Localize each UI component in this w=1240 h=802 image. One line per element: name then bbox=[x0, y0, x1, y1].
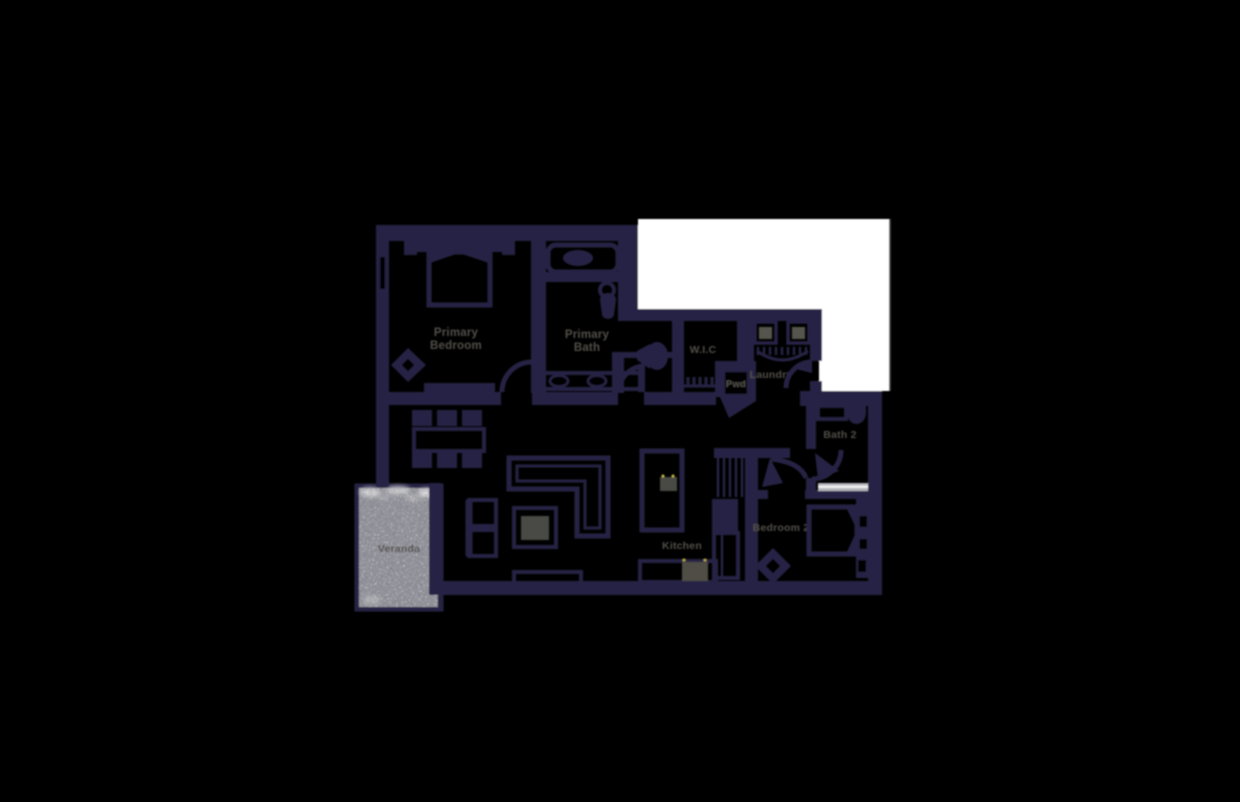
svg-text:Bedroom: Bedroom bbox=[430, 340, 482, 352]
svg-text:Bath 2: Bath 2 bbox=[823, 429, 856, 441]
svg-text:Kitchen: Kitchen bbox=[662, 540, 702, 552]
svg-text:Pwd: Pwd bbox=[726, 379, 746, 390]
svg-text:W.I.C: W.I.C bbox=[690, 344, 717, 356]
svg-text:Primary: Primary bbox=[434, 327, 479, 339]
svg-text:Bedroom 2: Bedroom 2 bbox=[753, 522, 810, 534]
svg-text:Primary: Primary bbox=[565, 329, 610, 341]
svg-text:Bath: Bath bbox=[574, 342, 600, 354]
svg-text:Veranda: Veranda bbox=[378, 543, 420, 555]
